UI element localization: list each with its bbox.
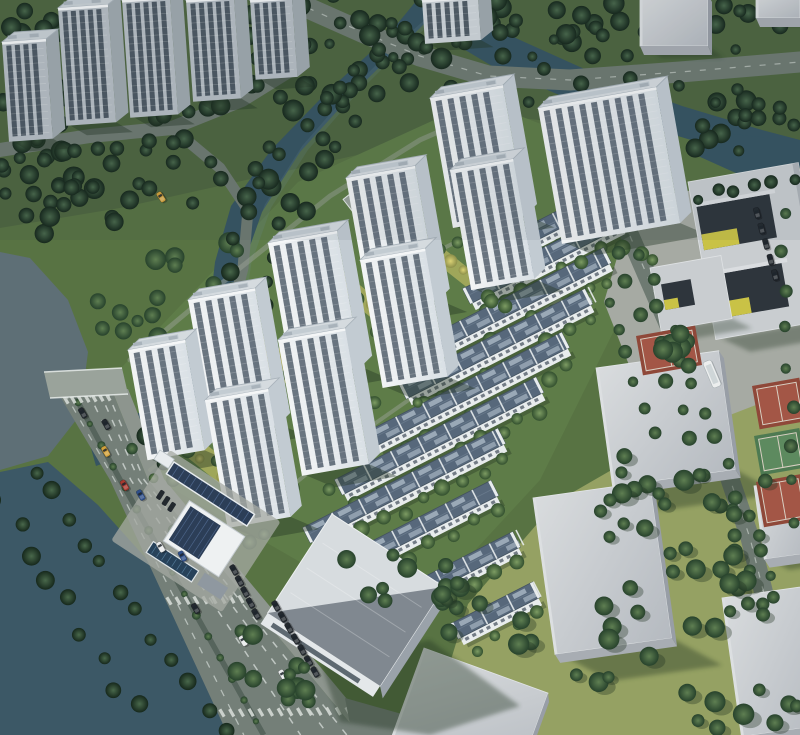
- masterplan-scene: [0, 0, 800, 735]
- aerial-masterplan-rendering: [0, 0, 800, 735]
